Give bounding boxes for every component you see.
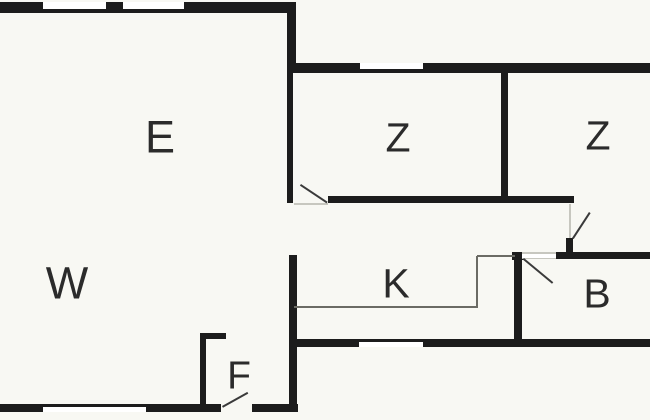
room-label-z2: Z	[585, 116, 610, 157]
window-top-2	[123, 2, 184, 9]
window-z1	[360, 63, 423, 69]
threshold-z1	[294, 203, 328, 205]
room-label-b: B	[583, 274, 610, 315]
room-label-z1: Z	[385, 118, 410, 159]
wall-f-top-stub	[200, 333, 226, 339]
threshold-z2	[569, 204, 571, 238]
wall-f-left	[200, 333, 206, 404]
kitchen-boundary-right	[476, 256, 478, 308]
room-label-k: K	[382, 264, 409, 305]
exterior-wall-bottom-left-b	[252, 404, 298, 412]
wall-b-top	[556, 252, 650, 259]
door-swing-z2	[572, 212, 591, 239]
threshold-b-top	[522, 252, 556, 254]
door-jamb-z2	[566, 238, 573, 252]
door-swing-z1	[300, 184, 328, 204]
kitchen-boundary-top	[477, 255, 515, 257]
door-swing-b	[523, 258, 553, 284]
threshold-b-bottom	[522, 258, 556, 260]
exterior-wall-bottom-right-wing	[289, 339, 650, 347]
window-k	[359, 342, 423, 347]
wall-z1-z2	[501, 73, 508, 196]
floor-plan: EZZWKBF	[0, 0, 650, 420]
wall-w-corridor	[289, 255, 297, 412]
window-w	[43, 407, 146, 412]
exterior-wall-top-right-wing	[287, 63, 650, 73]
window-top-1	[43, 2, 106, 9]
room-label-w: W	[46, 261, 88, 306]
wall-e-z1	[287, 73, 293, 203]
room-label-f: F	[227, 357, 251, 396]
room-label-e: E	[145, 115, 175, 160]
wall-z-corridor	[328, 196, 574, 203]
wall-k-b	[514, 252, 522, 347]
